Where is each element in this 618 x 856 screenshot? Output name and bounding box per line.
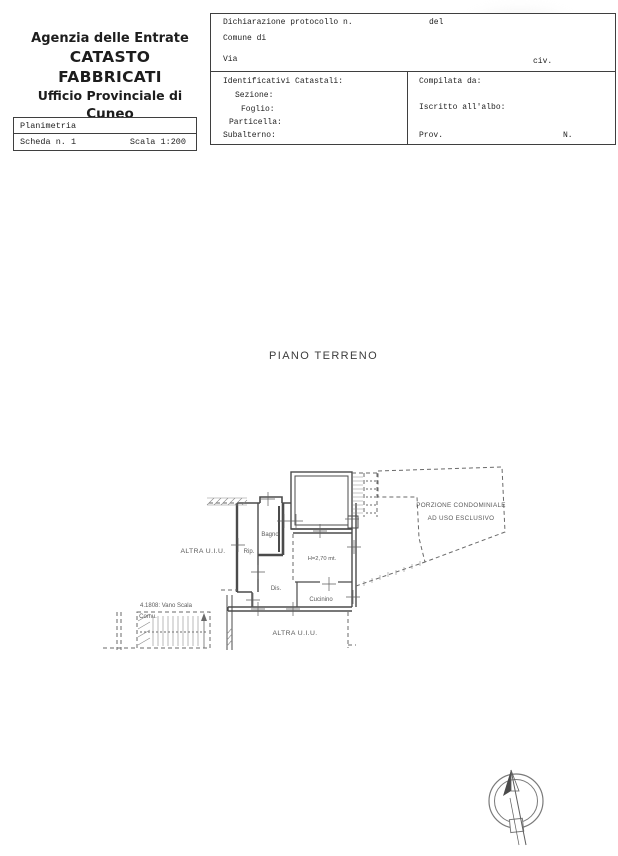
planimetria-label: Planimetria (14, 118, 196, 134)
compilata-label: Compilata da: (419, 77, 481, 86)
label-dis: Dis. (271, 586, 282, 592)
label-altra-uiu-left: ALTRA U.I.U. (180, 548, 225, 555)
foglio-label: Foglio: (241, 105, 275, 114)
agency-header: Agenzia delle Entrate CATASTO FABBRICATI… (22, 30, 198, 123)
label-altezza: H=2,70 mt. (308, 556, 337, 562)
sezione-label: Sezione: (235, 91, 273, 100)
lower-left-wall (227, 595, 232, 650)
party-wall-hatch (207, 498, 247, 505)
porzione-diagonal (356, 562, 425, 586)
office-line: Ufficio Provinciale di (22, 87, 198, 105)
label-bagno: Bagno (261, 532, 279, 538)
catasto-title: CATASTO FABBRICATI (22, 47, 198, 87)
scheda-label: Scheda n. 1 (20, 137, 76, 147)
room-top-walls (291, 472, 352, 529)
albo-label: Iscritto all'albo: (419, 103, 505, 112)
bl-party-walls (103, 612, 137, 650)
form-divider (407, 72, 408, 144)
particella-label: Particella: (229, 118, 282, 127)
label-rip: Rip. (244, 549, 255, 555)
floor-plan-drawing: ALTRA U.I.U. ALTRA U.I.U. Bagno Rip. Dis… (95, 450, 525, 675)
rip-bottom-wall (237, 592, 252, 607)
del-label: del (429, 18, 443, 27)
lower-wall-hatch (227, 628, 232, 646)
label-cucinino: Cucinino (309, 597, 333, 603)
room-top-inner (295, 476, 348, 525)
cucinino-walls (295, 582, 352, 607)
form-top-section: Dichiarazione protocollo n. del Comune d… (211, 14, 615, 72)
north-arrow-icon (470, 755, 570, 855)
agency-name: Agenzia delle Entrate (22, 30, 198, 47)
identificativi-label: Identificativi Catastali: (223, 77, 343, 86)
n-label: N. (563, 131, 573, 140)
comune-label: Comune di (223, 34, 266, 43)
stair-tr-treads (353, 477, 363, 513)
declaration-form: Dichiarazione protocollo n. del Comune d… (210, 13, 616, 145)
stair-arrow (201, 613, 207, 648)
label-porzione-2: AD USO ESCLUSIVO (428, 515, 495, 522)
subalterno-label: Subalterno: (223, 131, 276, 140)
planimetria-box: Planimetria Scheda n. 1 Scala 1:200 (13, 117, 197, 151)
label-comune-abbr: Comu. (139, 614, 157, 620)
stair-tr-dashsteps (366, 481, 377, 513)
br-dash (348, 612, 356, 648)
protocollo-label: Dichiarazione protocollo n. (223, 18, 353, 27)
via-label: Via (223, 55, 237, 64)
form-bottom-section: Identificativi Catastali: Sezione: Fogli… (211, 72, 615, 144)
label-porzione-1: PORZIONE CONDOMINIALE (416, 502, 506, 509)
cadastral-floorplan-sheet: Agenzia delle Entrate CATASTO FABBRICATI… (0, 0, 618, 856)
scala-label: Scala 1:200 (130, 137, 186, 147)
civ-label: civ. (533, 57, 552, 66)
label-altra-uiu-bottom: ALTRA U.I.U. (272, 630, 317, 637)
floor-title: PIANO TERRENO (269, 350, 378, 362)
label-vano-scala: 4.1808: Vano Scala (140, 603, 193, 609)
stair-bl-treads (153, 616, 198, 646)
prov-label: Prov. (419, 131, 443, 140)
